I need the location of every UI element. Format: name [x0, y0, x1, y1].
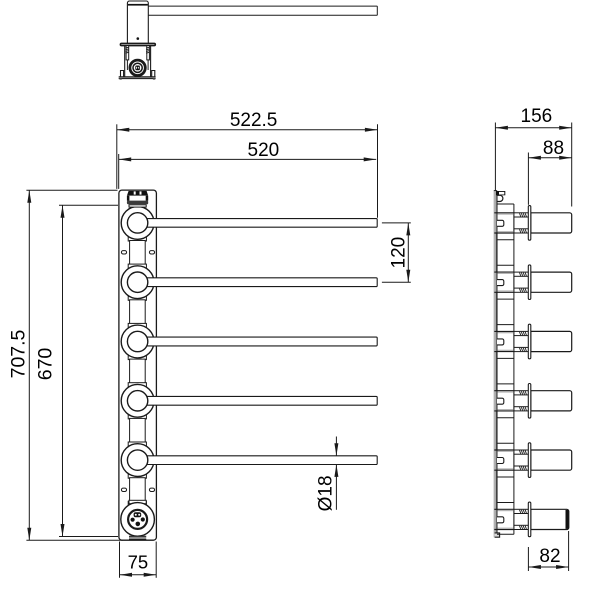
svg-text:520: 520 — [248, 140, 280, 161]
svg-text:670: 670 — [35, 348, 57, 381]
svg-text:156: 156 — [521, 106, 553, 127]
svg-text:75: 75 — [128, 552, 149, 573]
svg-text:Ø18: Ø18 — [316, 475, 337, 511]
svg-text:522.5: 522.5 — [230, 110, 278, 131]
svg-text:82: 82 — [539, 546, 560, 567]
svg-text:88: 88 — [543, 138, 564, 159]
svg-text:707.5: 707.5 — [7, 329, 29, 378]
svg-text:120: 120 — [388, 237, 409, 269]
